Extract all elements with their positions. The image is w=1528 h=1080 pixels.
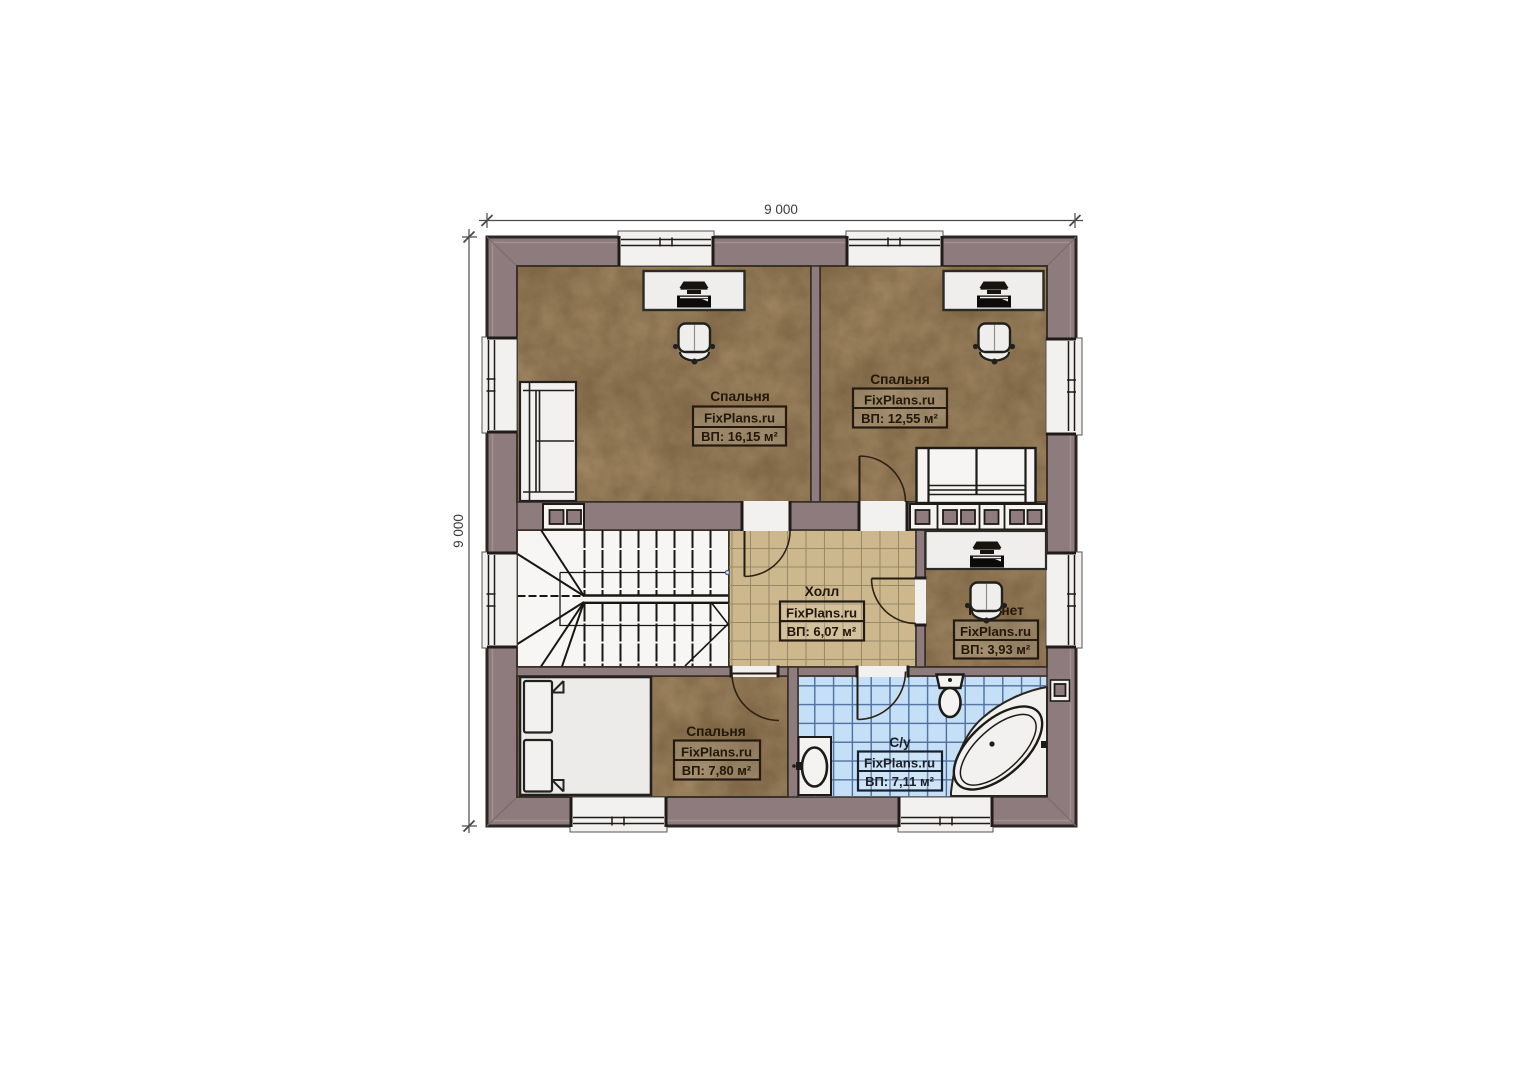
svg-text:FixPlans.ru: FixPlans.ru [864,393,935,408]
svg-text:FixPlans.ru: FixPlans.ru [786,606,857,621]
svg-text:9 000: 9 000 [451,514,466,548]
svg-text:Спальня: Спальня [710,389,770,404]
svg-text:Холл: Холл [805,584,840,599]
svg-text:Спальня: Спальня [870,372,930,387]
svg-text:FixPlans.ru: FixPlans.ru [681,745,752,760]
svg-text:ВП: 7,11 м²: ВП: 7,11 м² [865,774,934,789]
svg-text:ВП: 3,93 м²: ВП: 3,93 м² [961,642,1031,657]
svg-text:ВП: 16,15 м²: ВП: 16,15 м² [701,429,778,444]
svg-text:ВП: 7,80 м²: ВП: 7,80 м² [682,763,752,778]
svg-text:FixPlans.ru: FixPlans.ru [704,411,775,426]
svg-text:FixPlans.ru: FixPlans.ru [864,756,935,771]
svg-text:ВП: 6,07 м²: ВП: 6,07 м² [787,624,857,639]
svg-text:FixPlans.ru: FixPlans.ru [960,624,1031,639]
svg-text:С/у: С/у [889,735,911,750]
svg-text:ВП: 12,55 м²: ВП: 12,55 м² [861,411,938,426]
svg-text:Спальня: Спальня [686,724,746,739]
svg-text:9 000: 9 000 [764,202,798,217]
